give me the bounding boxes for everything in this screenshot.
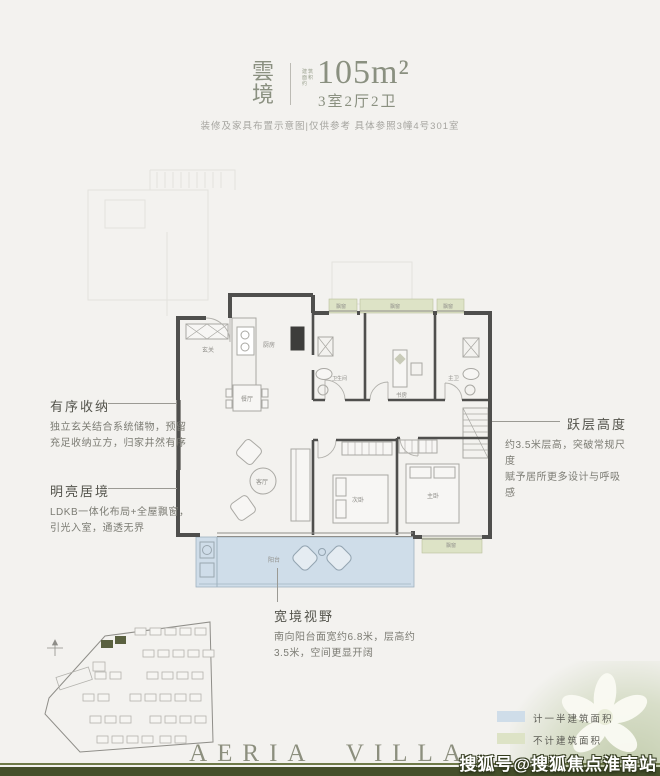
leader-view xyxy=(277,568,278,602)
bay-window-label-3: 飘窗 xyxy=(443,303,453,310)
annotation-bright: 明亮居境 LDKB一体化布局+全屋飘窗， 引光入室，通透无界 xyxy=(50,481,200,537)
bay-window-label-1: 飘窗 xyxy=(336,303,346,310)
annotation-storage-body: 独立玄关结合系统储物，预留 充足收纳立方，归家井然有序 xyxy=(50,420,200,452)
leader-loft xyxy=(492,421,560,422)
bathroom-label: 卫生间 xyxy=(332,375,347,382)
annotation-loft-title: 跃层高度 xyxy=(505,414,627,433)
watermark: 搜狐号@搜狐焦点淮南站 xyxy=(459,750,657,775)
leader-bright xyxy=(108,488,177,489)
legend-swatch-blue xyxy=(497,711,525,722)
annotation-storage: 有序收纳 独立玄关结合系统储物，预留 充足收纳立方，归家井然有序 xyxy=(50,396,200,452)
furniture xyxy=(186,318,488,523)
unit-layout: 3室2厅2卫 xyxy=(318,90,398,111)
floorplan-drawing: 飘窗 飘窗 飘窗 飘窗 阳台 xyxy=(0,150,660,620)
annotation-loft-body: 约3.5米层高，突破常规尺度 赋予居所更多设计与呼吸感 xyxy=(505,438,627,502)
annotation-bright-body: LDKB一体化布局+全屋飘窗， 引光入室，通透无界 xyxy=(50,505,200,537)
title-char-1: 雲 xyxy=(252,60,276,83)
highlighted-building xyxy=(101,636,126,648)
study-label: 书房 xyxy=(396,391,408,399)
master-bath-label: 主卫 xyxy=(448,374,460,382)
annotation-storage-title: 有序收纳 xyxy=(50,396,200,415)
balcony-label: 阳台 xyxy=(268,556,280,564)
annotation-view: 宽境视野 南向阳台面宽约6.8米，层高约 3.5米，空间更显开阔 xyxy=(274,606,434,662)
legend-label-half-area: 计一半建筑面积 xyxy=(533,711,614,725)
master-bedroom-label: 主卧 xyxy=(427,492,439,500)
compass-icon xyxy=(47,640,63,656)
floorplan-poster: 雲 境 建筑 面积约 105m² 3室2厅2卫 装修及家具布置示意图|仅供参考 … xyxy=(0,0,660,776)
annotation-view-title: 宽境视野 xyxy=(274,606,434,625)
area-value: 105m² xyxy=(317,54,410,92)
balcony-area xyxy=(196,537,414,587)
dining-label: 餐厅 xyxy=(241,395,253,403)
page-title: 雲 境 xyxy=(252,60,276,106)
annotation-bright-title: 明亮居境 xyxy=(50,481,200,500)
title-divider xyxy=(290,63,291,105)
bay-window-label-4: 飘窗 xyxy=(446,542,456,549)
bay-window-label-2: 飘窗 xyxy=(390,303,400,310)
entry-label: 玄关 xyxy=(202,346,214,354)
area-prefix-line2: 面积约 xyxy=(302,75,318,87)
site-plan xyxy=(35,610,225,760)
second-bedroom-label: 次卧 xyxy=(352,496,364,504)
area-prefix: 建筑 面积约 xyxy=(302,69,318,87)
kitchen-label: 厨房 xyxy=(263,341,275,349)
legend-item-half-area: 计一半建筑面积 xyxy=(497,711,647,723)
title-char-2: 境 xyxy=(252,83,276,106)
disclaimer-note: 装修及家具布置示意图|仅供参考 具体参照3幢4号301室 xyxy=(0,118,660,132)
annotation-loft: 跃层高度 约3.5米层高，突破常规尺度 赋予居所更多设计与呼吸感 xyxy=(505,414,627,502)
living-label: 客厅 xyxy=(256,478,268,486)
leader-storage xyxy=(108,403,177,404)
annotation-view-body: 南向阳台面宽约6.8米，层高约 3.5米，空间更显开阔 xyxy=(274,630,434,662)
